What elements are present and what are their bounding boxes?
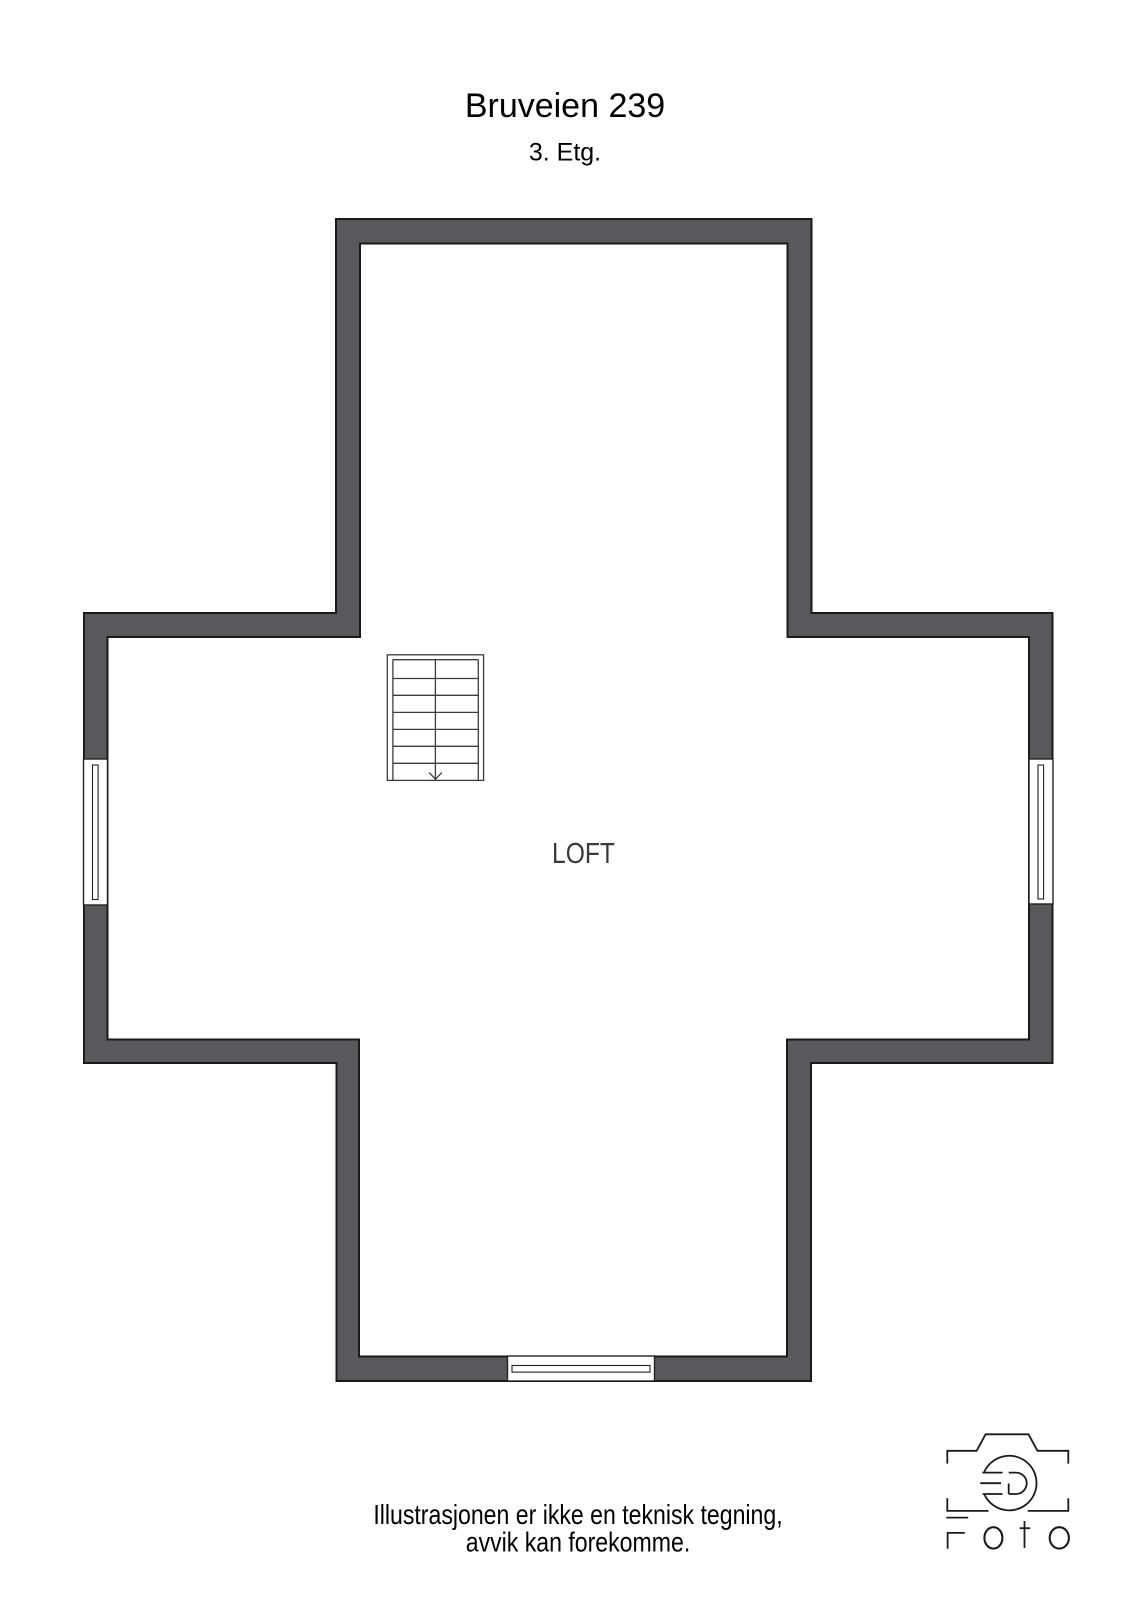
svg-text:Illustrasjonen er ikke en tekn: Illustrasjonen er ikke en teknisk tegnin… — [373, 1500, 782, 1530]
svg-text:3. Etg.: 3. Etg. — [529, 139, 601, 167]
svg-text:LOFT: LOFT — [552, 837, 615, 869]
svg-text:avvik kan forekomme.: avvik kan forekomme. — [466, 1528, 690, 1558]
svg-text:Bruveien 239: Bruveien 239 — [465, 87, 665, 125]
